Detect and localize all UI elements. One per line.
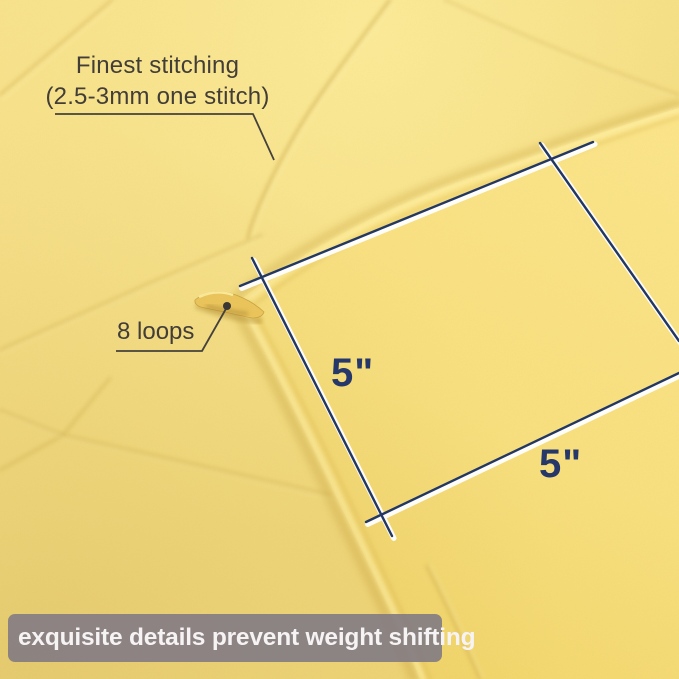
caption-banner-text: exquisite details prevent weight shiftin… [18, 624, 475, 652]
caption-banner: exquisite details prevent weight shiftin… [8, 614, 442, 662]
dimension-label-bottom: 5" [539, 442, 582, 487]
stitching-annotation-line2: (2.5-3mm one stitch) [40, 81, 275, 112]
product-image: Finest stitching (2.5-3mm one stitch) 8 … [0, 0, 679, 679]
stitching-annotation: Finest stitching (2.5-3mm one stitch) [40, 50, 275, 112]
dimension-label-left: 5" [331, 351, 374, 396]
stitching-annotation-line1: Finest stitching [40, 50, 275, 81]
loops-annotation: 8 loops [117, 318, 207, 346]
loops-leader-dot [223, 302, 231, 310]
